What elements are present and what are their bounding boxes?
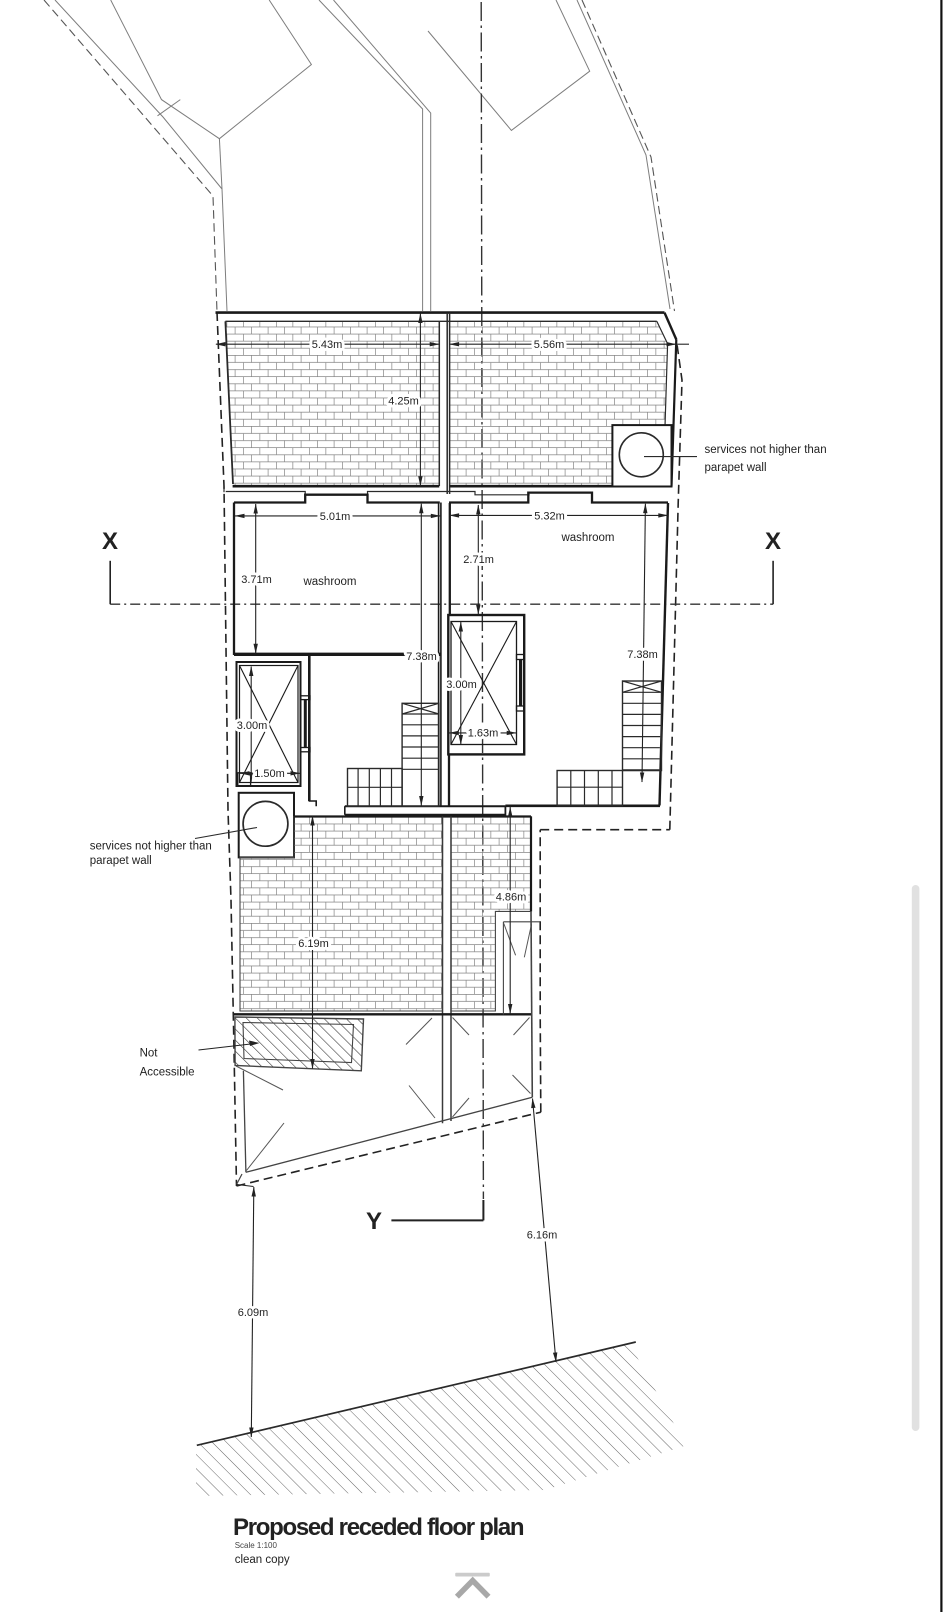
svg-text:2.71m: 2.71m (463, 554, 494, 566)
svg-text:5.32m: 5.32m (534, 510, 565, 522)
svg-text:6.09m: 6.09m (238, 1307, 269, 1319)
svg-text:washroom: washroom (560, 532, 614, 544)
svg-text:5.43m: 5.43m (312, 339, 343, 351)
svg-text:6.16m: 6.16m (527, 1230, 558, 1242)
svg-text:services not higher than: services not higher than (705, 444, 827, 456)
svg-text:Not: Not (140, 1048, 159, 1060)
svg-text:4.25m: 4.25m (388, 396, 419, 408)
svg-text:3.00m: 3.00m (237, 720, 268, 732)
svg-text:parapet wall: parapet wall (90, 855, 152, 867)
svg-text:clean copy: clean copy (235, 1554, 290, 1566)
svg-text:3.00m: 3.00m (446, 679, 477, 691)
svg-text:Proposed receded floor plan: Proposed receded floor plan (233, 1514, 524, 1541)
svg-text:washroom: washroom (302, 576, 356, 588)
svg-text:1.63m: 1.63m (468, 728, 499, 740)
svg-text:3.71m: 3.71m (241, 574, 272, 586)
svg-text:5.56m: 5.56m (534, 339, 565, 351)
svg-text:7.38m: 7.38m (627, 649, 658, 661)
svg-text:6.19m: 6.19m (298, 938, 329, 950)
svg-text:X: X (765, 528, 781, 555)
svg-text:Accessible: Accessible (140, 1067, 195, 1079)
svg-text:1.50m: 1.50m (254, 768, 285, 780)
svg-text:4.86m: 4.86m (496, 891, 527, 903)
svg-text:Scale 1:100: Scale 1:100 (235, 1541, 278, 1550)
svg-text:parapet wall: parapet wall (705, 462, 767, 474)
svg-text:Y: Y (366, 1208, 382, 1235)
svg-text:5.01m: 5.01m (320, 511, 351, 523)
svg-text:7.38m: 7.38m (406, 651, 437, 663)
svg-text:X: X (102, 528, 118, 555)
svg-text:services not higher than: services not higher than (90, 841, 212, 853)
